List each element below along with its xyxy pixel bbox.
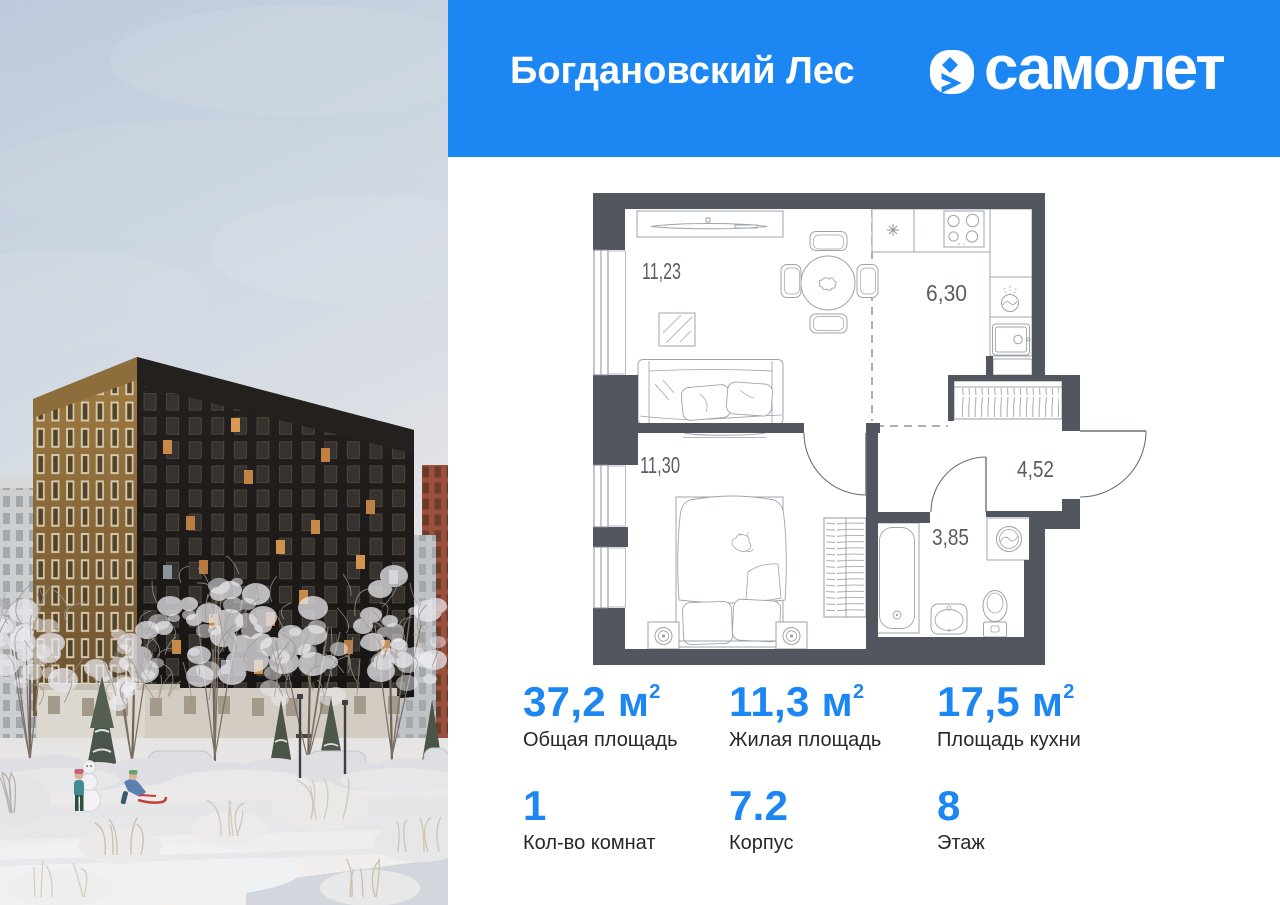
svg-text:11,30: 11,30 (640, 452, 680, 478)
svg-text:4,52: 4,52 (1017, 456, 1054, 482)
svg-text:6,30: 6,30 (926, 280, 967, 306)
svg-text:11,23: 11,23 (642, 258, 681, 284)
svg-text:3,85: 3,85 (932, 524, 969, 550)
